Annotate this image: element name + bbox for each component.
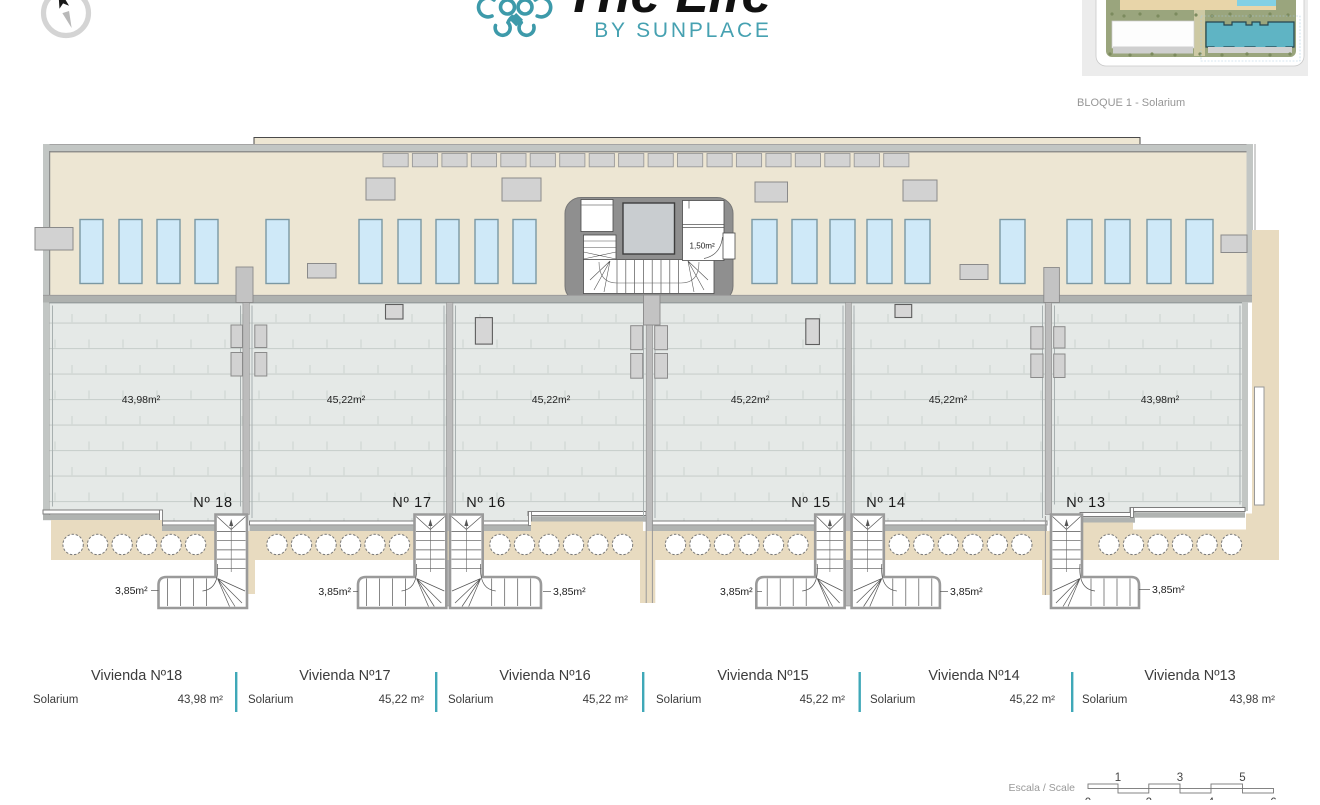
svg-text:Solarium: Solarium [1082,694,1127,706]
svg-text:43,98m²: 43,98m² [122,394,161,406]
svg-text:Nº 18: Nº 18 [193,495,232,511]
svg-text:Solarium: Solarium [33,694,78,706]
svg-text:45,22 m²: 45,22 m² [583,694,629,706]
svg-text:Solarium: Solarium [656,694,701,706]
svg-text:1,50m²: 1,50m² [690,242,715,251]
svg-text:Escala / Scale: Escala / Scale [1008,782,1075,794]
svg-text:45,22m²: 45,22m² [731,394,770,406]
svg-text:45,22m²: 45,22m² [532,394,571,406]
svg-text:1: 1 [1115,772,1121,784]
svg-text:43,98m²: 43,98m² [1141,394,1180,406]
svg-text:Nº 17: Nº 17 [392,495,431,511]
svg-text:45,22 m²: 45,22 m² [800,694,846,706]
svg-text:Vivienda Nº18: Vivienda Nº18 [91,668,182,684]
svg-text:Nº 13: Nº 13 [1066,495,1105,511]
svg-text:Vivienda Nº16: Vivienda Nº16 [499,668,590,684]
svg-text:45,22m²: 45,22m² [327,394,366,406]
svg-text:45,22m²: 45,22m² [929,394,968,406]
svg-text:Solarium: Solarium [248,694,293,706]
svg-text:Vivienda Nº15: Vivienda Nº15 [717,668,808,684]
svg-text:Nº 16: Nº 16 [466,495,505,511]
svg-text:3,85m²: 3,85m² [318,586,351,598]
svg-text:Vivienda Nº13: Vivienda Nº13 [1144,668,1235,684]
svg-text:43,98 m²: 43,98 m² [1230,694,1276,706]
svg-text:Vivienda Nº14: Vivienda Nº14 [928,668,1019,684]
svg-text:Nº 15: Nº 15 [791,495,830,511]
svg-text:3: 3 [1177,772,1183,784]
svg-text:3,85m²: 3,85m² [115,585,148,597]
svg-text:Nº 14: Nº 14 [866,495,905,511]
svg-text:Solarium: Solarium [448,694,493,706]
svg-text:3,85m²: 3,85m² [720,586,753,598]
svg-text:43,98 m²: 43,98 m² [178,694,224,706]
svg-text:3,85m²: 3,85m² [553,586,586,598]
svg-text:BY SUNPLACE: BY SUNPLACE [594,19,771,42]
svg-text:Solarium: Solarium [870,694,915,706]
svg-text:3,85m²: 3,85m² [950,586,983,598]
svg-text:3,85m²: 3,85m² [1152,584,1185,596]
svg-text:BLOQUE 1 - Solarium: BLOQUE 1 - Solarium [1077,97,1185,109]
svg-text:5: 5 [1239,772,1245,784]
svg-text:45,22 m²: 45,22 m² [1010,694,1056,706]
svg-text:45,22 m²: 45,22 m² [379,694,425,706]
svg-text:Vivienda Nº17: Vivienda Nº17 [299,668,390,684]
